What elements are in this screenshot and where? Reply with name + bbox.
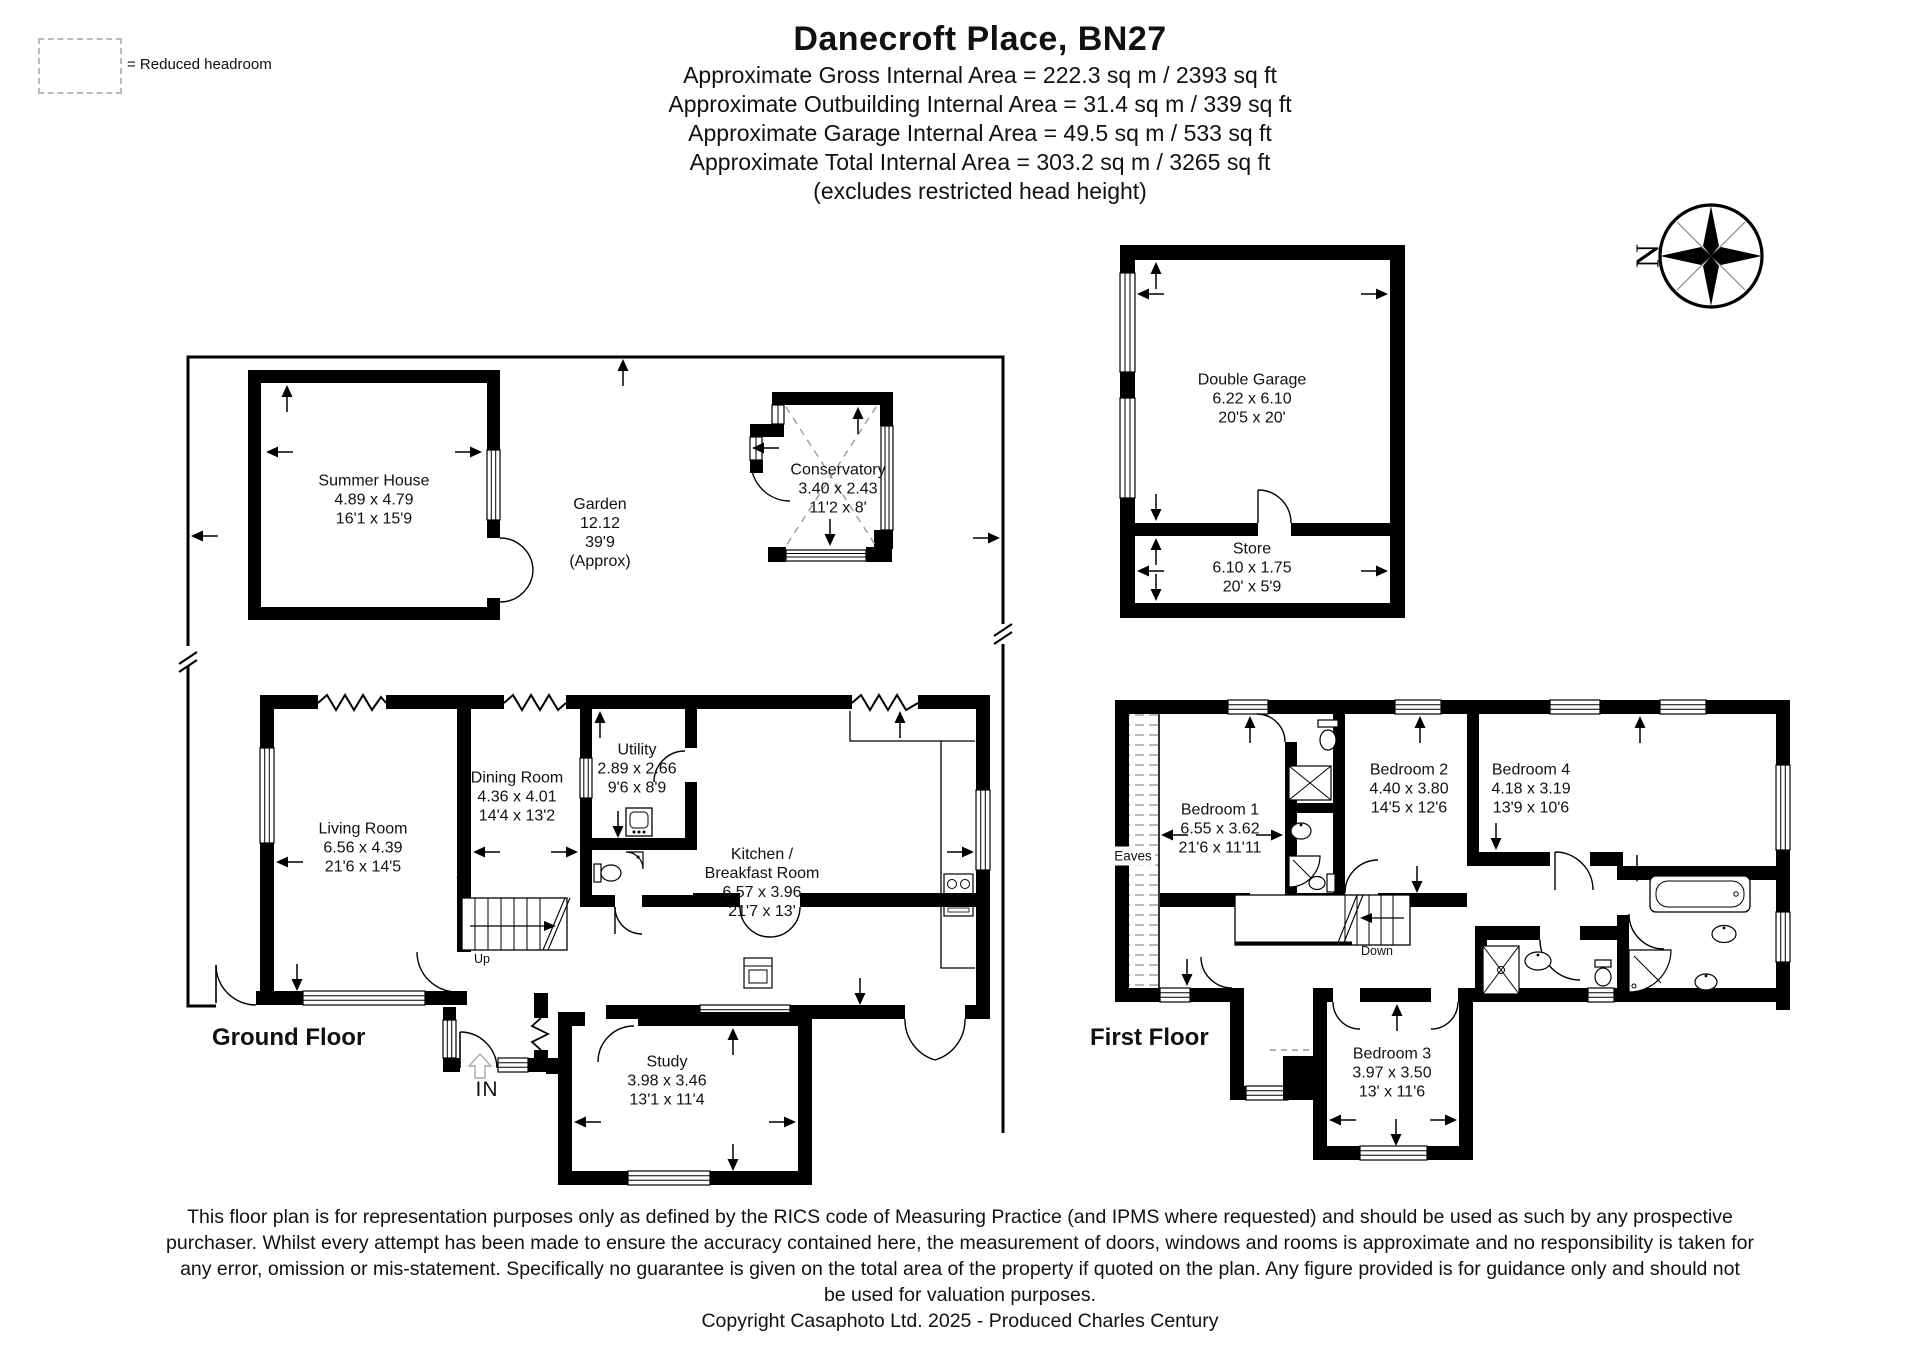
window xyxy=(487,450,500,520)
area-line-total: Approximate Total Internal Area = 303.2 … xyxy=(40,150,1920,175)
area-line-outbuilding: Approximate Outbuilding Internal Area = … xyxy=(40,92,1920,117)
room-label-bedroom-1: Bedroom 1 6.55 x 3.62 21'6 x 11'11 xyxy=(1179,801,1262,858)
room-label-study: Study 3.98 x 3.46 13'1 x 11'4 xyxy=(627,1053,706,1110)
room-label-bedroom-3: Bedroom 3 3.97 x 3.50 13' x 11'6 xyxy=(1352,1045,1431,1102)
stairs-up-label: Up xyxy=(474,952,490,966)
corner-basin-icon xyxy=(626,852,643,869)
room-label-utility: Utility 2.89 x 2.66 9'6 x 8'9 xyxy=(597,741,676,798)
room-label-dining-room: Dining Room 4.36 x 4.01 14'4 x 13'2 xyxy=(471,769,563,826)
toilet-icon xyxy=(1595,960,1611,986)
oven-icon xyxy=(744,958,772,988)
basin-icon xyxy=(1695,974,1717,990)
disclaimer-line: any error, omission or mis-statement. Sp… xyxy=(0,1256,1920,1282)
corner-shower-icon xyxy=(1629,950,1671,992)
bath-icon xyxy=(1650,876,1750,912)
eaves-label: Eaves xyxy=(1111,847,1155,866)
disclaimer-line: purchaser. Whilst every attempt has been… xyxy=(0,1230,1920,1256)
room-label-store: Store 6.10 x 1.75 20' x 5'9 xyxy=(1212,540,1291,597)
compass-rose: N xyxy=(1630,205,1763,307)
room-label-kitchen: Kitchen / Breakfast Room 6.57 x 3.96 21'… xyxy=(705,845,820,921)
title-block: Danecroft Place, BN27 Approximate Gross … xyxy=(40,20,1920,204)
disclaimer-line: This floor plan is for representation pu… xyxy=(0,1204,1920,1230)
room-label-living-room: Living Room 6.56 x 4.39 21'6 x 14'5 xyxy=(319,820,408,877)
basin-icon xyxy=(1525,952,1551,970)
first-floor-label: First Floor xyxy=(1090,1024,1209,1052)
area-line-garage: Approximate Garage Internal Area = 49.5 … xyxy=(40,121,1920,146)
first-floor-outline xyxy=(1115,700,1790,1160)
room-label-bedroom-2: Bedroom 2 4.40 x 3.80 14'5 x 12'6 xyxy=(1369,761,1448,818)
stairs-up xyxy=(462,898,570,950)
toilet-icon xyxy=(1318,720,1338,750)
basin-icon xyxy=(1712,926,1736,943)
ground-floor-label: Ground Floor xyxy=(212,1024,365,1052)
area-line-gross: Approximate Gross Internal Area = 222.3 … xyxy=(40,63,1920,88)
utility-sink-icon xyxy=(626,808,652,836)
room-label-double-garage: Double Garage 6.22 x 6.10 20'5 x 20' xyxy=(1198,371,1307,428)
room-label-garden: Garden 12.12 39'9 (Approx) xyxy=(569,495,630,571)
room-label-conservatory: Conservatory 3.40 x 2.43 11'2 x 8' xyxy=(790,461,885,518)
toilet-icon xyxy=(1309,874,1335,892)
compass-north-label: N xyxy=(1630,244,1667,269)
copyright-line: Copyright Casaphoto Ltd. 2025 - Produced… xyxy=(0,1308,1920,1334)
entrance-arrow-icon xyxy=(469,1054,491,1078)
room-label-summer-house: Summer House 4.89 x 4.79 16'1 x 15'9 xyxy=(318,472,429,529)
toilet-icon xyxy=(594,864,621,882)
basin-icon xyxy=(1291,823,1311,839)
page-title: Danecroft Place, BN27 xyxy=(40,20,1920,59)
stairs-down xyxy=(1235,895,1410,945)
stairs-down-label: Down xyxy=(1361,944,1393,958)
room-label-bedroom-4: Bedroom 4 4.18 x 3.19 13'9 x 10'6 xyxy=(1491,761,1570,818)
disclaimer-block: This floor plan is for representation pu… xyxy=(0,1204,1920,1334)
shower-icon xyxy=(1289,766,1331,800)
shower-icon xyxy=(1483,946,1519,994)
disclaimer-line: be used for valuation purposes. xyxy=(0,1282,1920,1308)
floor-plan-page: { "header": { "legend_label": "= Reduced… xyxy=(0,0,1920,1356)
entrance-in-label: IN xyxy=(476,1078,499,1102)
area-line-excludes: (excludes restricted head height) xyxy=(40,179,1920,204)
